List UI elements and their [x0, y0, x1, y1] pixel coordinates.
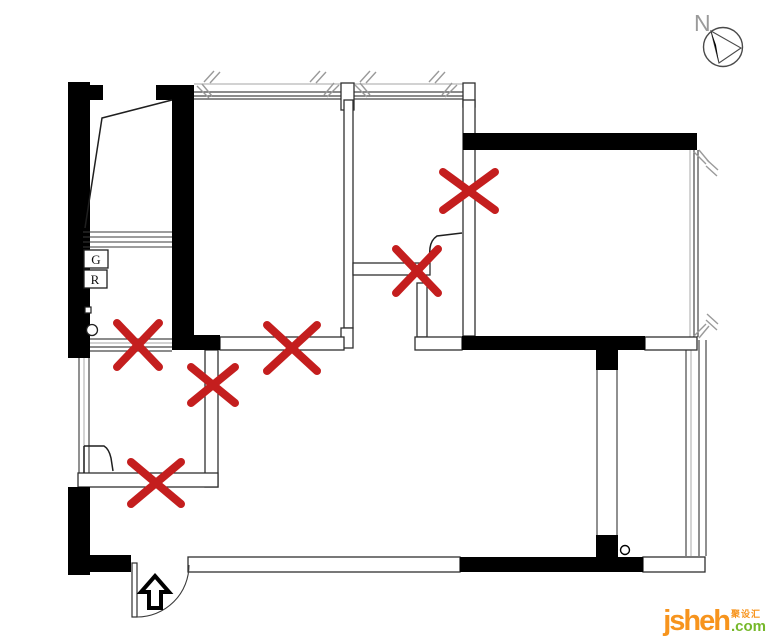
bathroom-door	[84, 446, 113, 473]
break-marks	[197, 71, 718, 338]
watermark-suffix: .com	[731, 619, 766, 634]
utility-shaft: G R	[83, 100, 172, 336]
north-compass-icon: N	[694, 10, 743, 67]
watermark-logo: jsheh 聚设汇 .com	[663, 607, 766, 636]
fixture-circle	[87, 325, 98, 336]
fixture-square	[85, 307, 91, 313]
water-meter-label: R	[91, 272, 100, 287]
floorplan-page: G R N jsheh	[0, 0, 770, 642]
north-label: N	[694, 10, 711, 36]
sill-lines	[83, 232, 172, 247]
floor-drain-icon	[621, 546, 630, 555]
entry-arrow-icon	[141, 576, 169, 608]
gas-meter-label: G	[91, 252, 100, 267]
structural-walls	[68, 82, 697, 575]
watermark-brand: jsheh	[663, 607, 729, 636]
floorplan-drawing: G R N	[0, 0, 770, 642]
entry-door-leaf	[132, 563, 137, 617]
